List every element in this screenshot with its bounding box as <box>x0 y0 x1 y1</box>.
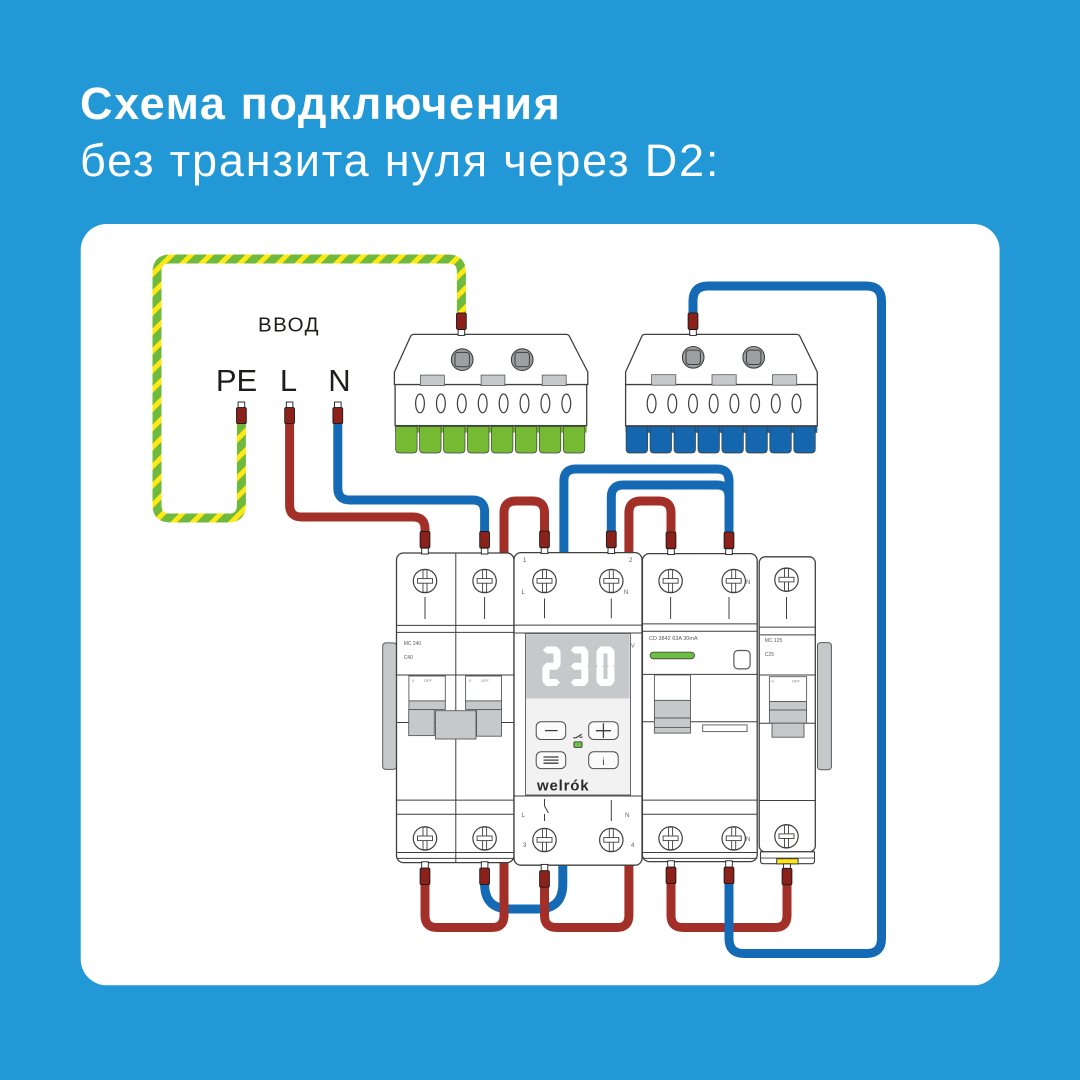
svg-text:Схема подключения: Схема подключения <box>80 78 562 129</box>
svg-text:без транзита нуля через D2:: без транзита нуля через D2: <box>80 135 720 186</box>
svg-text:OFF: OFF <box>481 678 490 683</box>
svg-text:OFF: OFF <box>424 678 433 683</box>
svg-text:i: i <box>602 756 604 768</box>
svg-text:OFF: OFF <box>792 679 801 684</box>
svg-text:N: N <box>624 590 628 596</box>
svg-text:ВВОД: ВВОД <box>258 314 320 337</box>
svg-text:welrók: welrók <box>536 778 589 795</box>
svg-text:C40: C40 <box>404 655 413 661</box>
svg-text:CD 3842 63A 30mA: CD 3842 63A 30mA <box>649 636 698 642</box>
svg-text:MC 125: MC 125 <box>765 638 783 644</box>
svg-text:N: N <box>746 837 750 843</box>
svg-text:N: N <box>746 580 750 586</box>
svg-text:N: N <box>328 363 350 398</box>
svg-text:C25: C25 <box>765 652 774 658</box>
svg-text:MC 240: MC 240 <box>404 641 422 647</box>
svg-text:PE: PE <box>216 363 257 398</box>
svg-text:L: L <box>280 363 297 398</box>
svg-text:N: N <box>625 813 629 819</box>
svg-text:V: V <box>631 644 635 650</box>
